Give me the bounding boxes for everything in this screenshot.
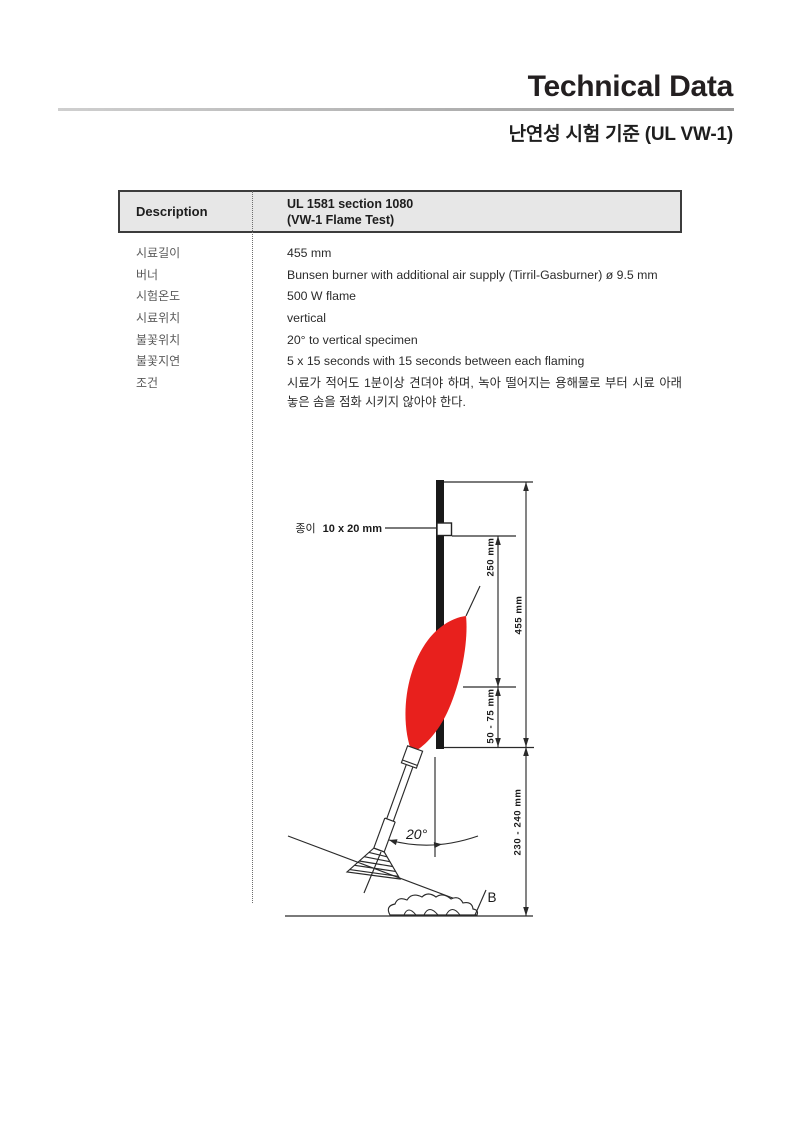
table-header-description: Description [136, 192, 208, 231]
row-label: 시료위치 [118, 309, 287, 328]
paper-flag-label-size: 10 x 20 mm [323, 523, 383, 535]
cotton-label: B [488, 890, 497, 905]
arrow-icon [495, 678, 501, 687]
row-value: 20° to vertical specimen [287, 331, 682, 350]
row-label: 불꽃지연 [118, 352, 287, 371]
support-line [288, 836, 458, 900]
row-value: 500 W flame [287, 287, 682, 306]
standard-line-1: UL 1581 section 1080 [287, 196, 413, 212]
arrow-icon [523, 747, 529, 756]
burner-tube-edge [393, 767, 413, 821]
arrow-icon [434, 842, 442, 848]
dim-label-230-240: 230 - 240 mm [513, 789, 524, 856]
row-label: 시험온도 [118, 287, 287, 306]
table-row: 시험온도 500 W flame [118, 285, 682, 307]
table-header: Description UL 1581 section 1080 (VW-1 F… [118, 190, 682, 233]
burner-tube-edge [387, 765, 407, 819]
row-label: 버너 [118, 266, 287, 285]
flame-tip-line [466, 586, 480, 616]
flame-test-diagram: 250 mm 455 mm 50 - 75 mm 230 - 240 mm 종이… [250, 448, 570, 943]
dim-label-50-75: 50 - 75 mm [486, 688, 497, 743]
row-label: 조건 [118, 374, 287, 393]
paper-flag [437, 523, 452, 536]
angle-arc [389, 836, 478, 845]
arrow-icon [523, 738, 529, 747]
spec-table: 시료길이 455 mm 버너 Bunsen burner with additi… [118, 242, 682, 412]
table-row: 불꽃지연 5 x 15 seconds with 15 seconds betw… [118, 350, 682, 372]
title-divider [58, 108, 734, 111]
row-value: Bunsen burner with additional air supply… [287, 266, 682, 285]
arrow-icon [523, 482, 529, 491]
page-title: Technical Data [528, 71, 733, 102]
row-label: 시료길이 [118, 244, 287, 263]
page-subtitle: 난연성 시험 기준 (UL VW-1) [509, 123, 733, 147]
paper-flag-label-prefix: 종이 [295, 522, 315, 535]
arrow-icon [389, 839, 398, 845]
flame-shape [405, 616, 466, 753]
row-label: 불꽃위치 [118, 331, 287, 350]
paper-flag-label: 종이 10 x 20 mm [295, 522, 382, 535]
row-value: 455 mm [287, 244, 682, 263]
burner-collar-edge [384, 822, 395, 852]
standard-line-2: (VW-1 Flame Test) [287, 212, 413, 228]
table-row: 버너 Bunsen burner with additional air sup… [118, 264, 682, 286]
table-row: 시료위치 vertical [118, 307, 682, 329]
angle-label: 20° [405, 826, 428, 842]
table-row: 불꽃위치 20° to vertical specimen [118, 329, 682, 351]
dim-label-455: 455 mm [514, 596, 525, 635]
cotton-label-leader [475, 890, 486, 915]
row-value: 시료가 적어도 1분이상 견뎌야 하며, 녹아 떨어지는 용해물로 부터 시료 … [287, 374, 682, 412]
row-value: vertical [287, 309, 682, 328]
burner-nozzle [401, 746, 422, 768]
table-row: 시료길이 455 mm [118, 242, 682, 264]
row-value: 5 x 15 seconds with 15 seconds between e… [287, 352, 682, 371]
dim-label-250: 250 mm [486, 538, 497, 577]
document-page: Technical Data 난연성 시험 기준 (UL VW-1) Descr… [0, 0, 793, 1121]
cotton-wool [388, 894, 477, 915]
table-row: 조건 시료가 적어도 1분이상 견뎌야 하며, 녹아 떨어지는 용해물로 부터 … [118, 372, 682, 412]
burner-collar-edge [374, 818, 385, 848]
arrow-icon [523, 907, 529, 916]
table-header-standard: UL 1581 section 1080 (VW-1 Flame Test) [287, 192, 413, 231]
